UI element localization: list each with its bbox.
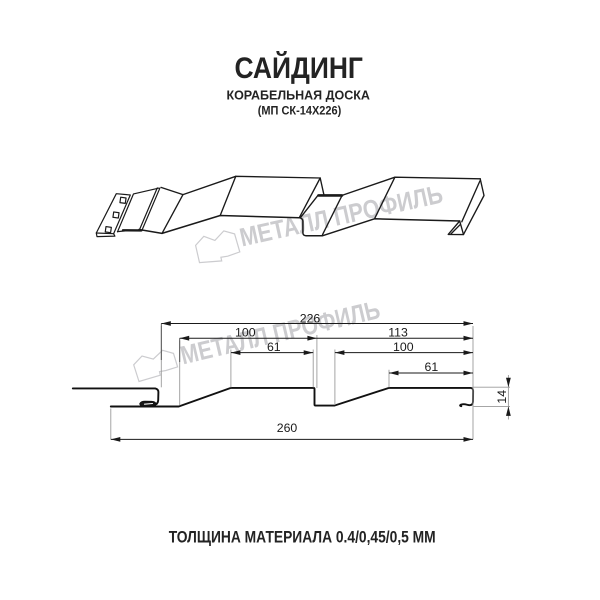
svg-text:226: 226	[300, 311, 321, 325]
svg-text:113: 113	[388, 325, 408, 339]
svg-text:КОРАБЕЛЬНАЯ ДОСКА: КОРАБЕЛЬНАЯ ДОСКА	[226, 88, 370, 103]
svg-text:САЙДИНГ: САЙДИНГ	[234, 51, 363, 85]
svg-text:61: 61	[267, 340, 281, 354]
svg-text:61: 61	[425, 360, 439, 374]
svg-text:14: 14	[495, 390, 509, 404]
svg-text:(МП СК-14Х226): (МП СК-14Х226)	[258, 104, 342, 118]
svg-text:100: 100	[235, 325, 256, 339]
svg-text:260: 260	[277, 421, 298, 435]
svg-text:ТОЛЩИНА МАТЕРИАЛА 0.4/0,45/0,5: ТОЛЩИНА МАТЕРИАЛА 0.4/0,45/0,5 ММ	[169, 528, 436, 547]
svg-text:100: 100	[393, 340, 414, 354]
